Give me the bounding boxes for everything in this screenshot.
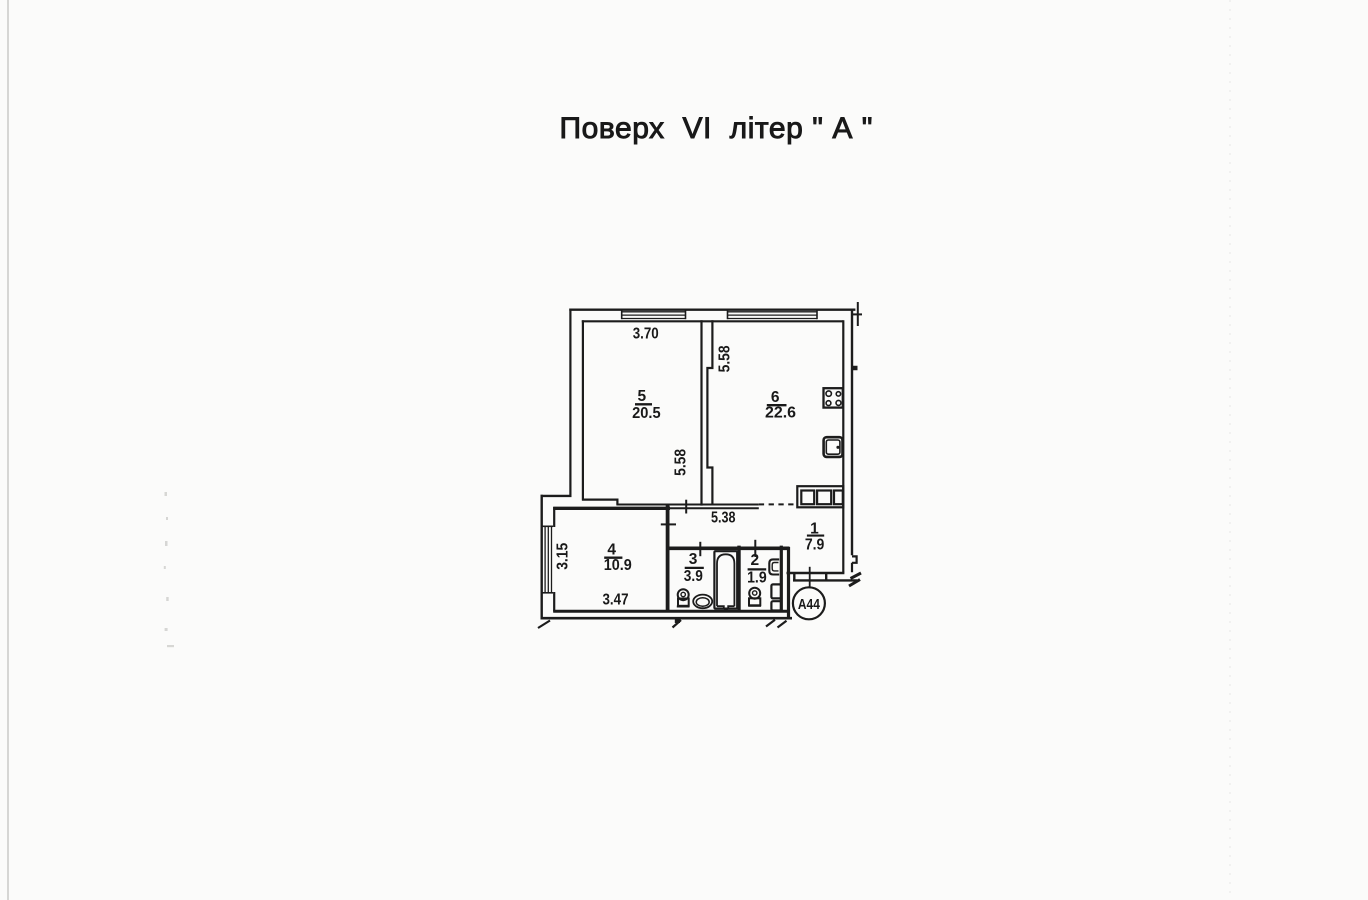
svg-text:5.58: 5.58 xyxy=(716,345,733,372)
svg-text:3.47: 3.47 xyxy=(603,591,629,608)
svg-text:А44: А44 xyxy=(798,597,820,613)
svg-text:2: 2 xyxy=(750,552,759,569)
svg-text:22.6: 22.6 xyxy=(765,405,796,422)
svg-text:5.38: 5.38 xyxy=(711,510,736,527)
svg-text:10.9: 10.9 xyxy=(604,557,632,574)
svg-text:3.70: 3.70 xyxy=(633,325,659,342)
svg-text:3: 3 xyxy=(689,551,698,568)
svg-text:3.15: 3.15 xyxy=(554,542,571,569)
svg-text:5.58: 5.58 xyxy=(673,449,690,476)
svg-text:Поверх VI літер " А ": Поверх VI літер " А " xyxy=(560,112,873,145)
svg-text:7.9: 7.9 xyxy=(805,536,825,553)
svg-text:4: 4 xyxy=(607,541,616,558)
svg-text:1.9: 1.9 xyxy=(747,570,767,587)
svg-text:3.9: 3.9 xyxy=(684,568,703,585)
svg-text:5: 5 xyxy=(637,388,646,405)
svg-text:20.5: 20.5 xyxy=(632,405,661,422)
